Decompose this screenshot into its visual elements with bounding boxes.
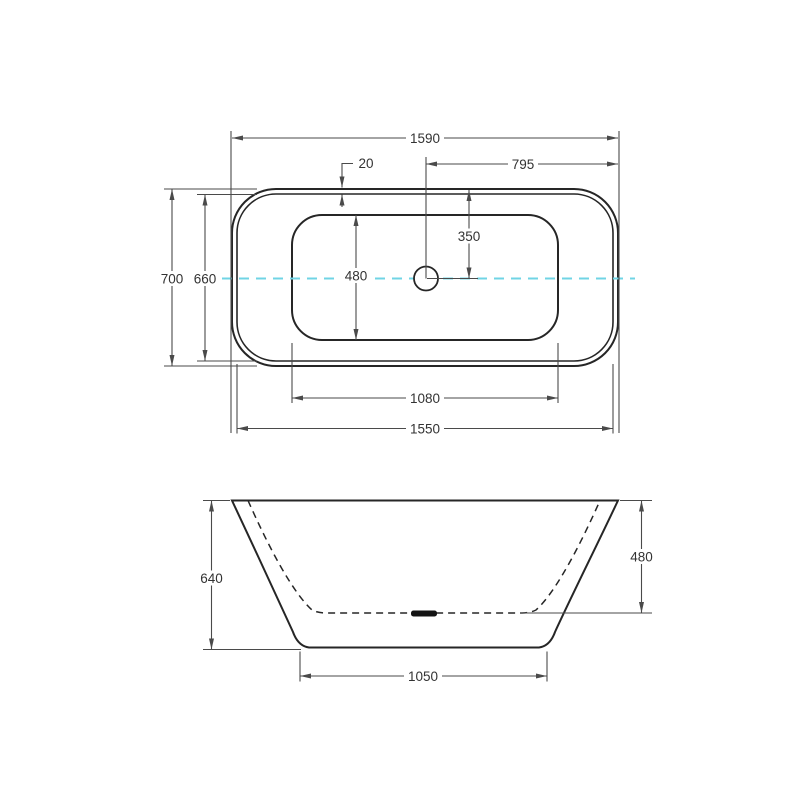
dim-basin-width: 480 [341,215,371,340]
top-view-dimensions: 1590 795 20 350 700 [157,131,619,437]
tub-outline [232,501,618,648]
dim-label-inner-depth: 480 [630,550,653,565]
dim-label-inner-rim-length: 1550 [410,422,440,437]
dim-rim-width: 20 [342,156,374,207]
dim-half-length: 795 [426,157,618,279]
dim-base-width: 1050 [300,652,547,685]
dim-label-basin-length: 1080 [410,391,440,406]
side-view [232,501,618,648]
dim-label-overall-length: 1590 [410,131,440,146]
dim-basin-length: 1080 [292,343,558,406]
dim-inner-depth: 480 [521,501,657,614]
dim-label-inner-rim-width: 660 [194,272,217,287]
dim-label-overall-width: 700 [161,272,184,287]
dim-label-base-width: 1050 [408,669,438,684]
technical-drawing-page: 1590 795 20 350 700 [0,0,800,800]
dim-label-half-length: 795 [512,157,535,172]
dim-drain-offset: 350 [427,190,484,279]
top-view [222,189,635,366]
dim-overall-height: 640 [197,501,302,650]
inner-profile-dashed [248,501,600,614]
dim-label-rim-width: 20 [358,156,373,171]
dim-label-overall-height: 640 [200,571,223,586]
drain-outlet [411,611,437,617]
dim-label-drain-offset: 350 [458,229,481,244]
leader-line [342,164,353,188]
dim-label-basin-width: 480 [345,269,368,284]
bathtub-dimension-drawing: 1590 795 20 350 700 [0,0,800,800]
